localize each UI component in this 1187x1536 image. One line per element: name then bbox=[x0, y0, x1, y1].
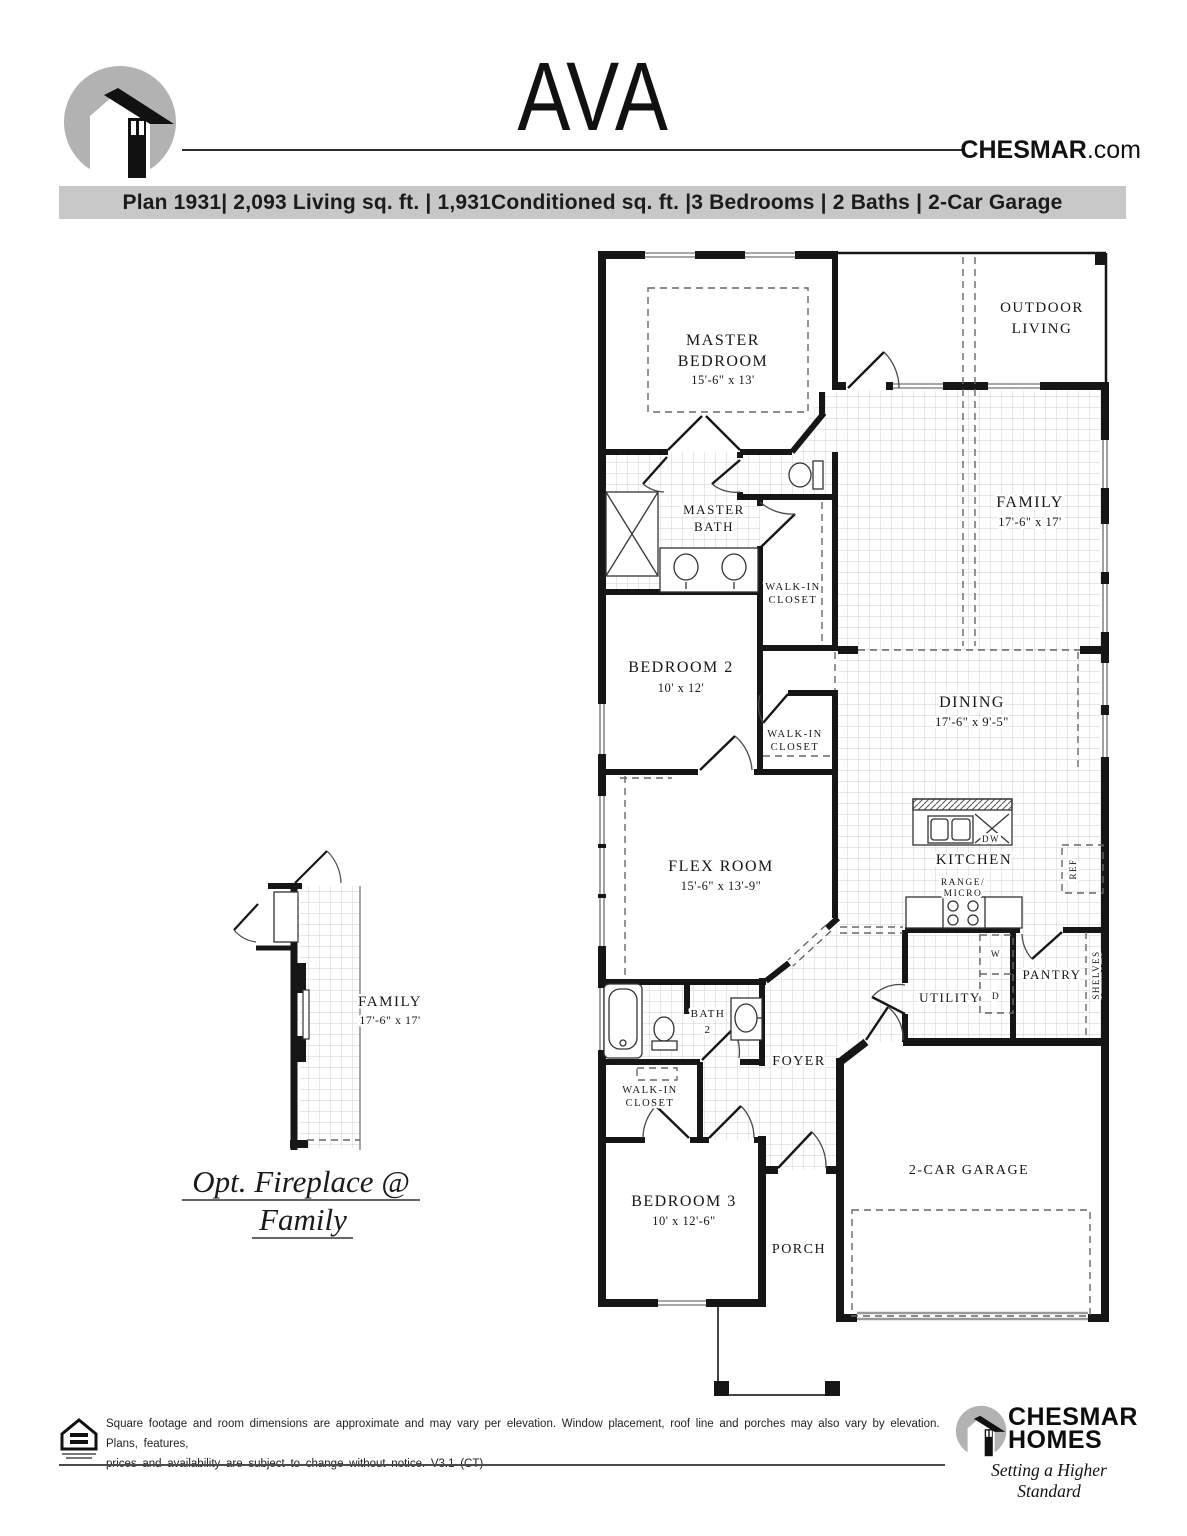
walk-in-closet2-label: WALK-IN bbox=[767, 729, 822, 740]
porch-slab bbox=[714, 1307, 840, 1396]
master-bath-label2: BATH bbox=[694, 519, 734, 534]
bedroom2-label: BEDROOM 2 bbox=[628, 659, 734, 676]
garage-label: 2-CAR GARAGE bbox=[909, 1163, 1029, 1178]
washer-label: W bbox=[991, 950, 1001, 960]
family-dims: 17'-6" x 17' bbox=[998, 515, 1062, 529]
chesmar-homes-icon bbox=[955, 1404, 1009, 1458]
dryer-label: D bbox=[992, 992, 1000, 1002]
master-bath-label: MASTER bbox=[683, 502, 745, 517]
floor-plan-flyer: AVA CHESMAR.com Plan 1931| 2,093 Living … bbox=[0, 0, 1187, 1536]
utility-label: UTILITY bbox=[919, 990, 981, 1005]
option-caption-line2: Family bbox=[258, 1202, 347, 1237]
option-fireplace-detail-plan: FAMILY 17'-6" x 17' Opt. Fireplace @ Fam… bbox=[182, 851, 422, 1238]
equal-housing-icon bbox=[60, 1418, 98, 1460]
ceiling-stub-right bbox=[1080, 646, 1105, 654]
detail-family-label: FAMILY bbox=[358, 994, 422, 1010]
detail-family-dims: 17'-6" x 17' bbox=[359, 1013, 420, 1027]
walk-in-closet3-label2: CLOSET bbox=[626, 1098, 675, 1109]
floor-plan-drawing: MASTER BEDROOM 15'-6" x 13' OUTDOOR LIVI… bbox=[0, 0, 1187, 1536]
dining-label: DINING bbox=[939, 694, 1005, 711]
walk-in-closet1-label2: CLOSET bbox=[769, 595, 818, 606]
dishwasher-label: DW bbox=[982, 834, 1000, 844]
brand-name: CHESMAR HOMES bbox=[1008, 1406, 1138, 1452]
walk-in-closet1-label: WALK-IN bbox=[765, 582, 820, 593]
walk-in-closet2-label2: CLOSET bbox=[771, 742, 820, 753]
brand-line2: HOMES bbox=[1008, 1429, 1138, 1452]
main-floor-plan: MASTER BEDROOM 15'-6" x 13' OUTDOOR LIVI… bbox=[597, 250, 1110, 1396]
patio-post bbox=[1095, 253, 1107, 265]
bath2-sink-fixture bbox=[731, 998, 762, 1040]
shower-fixture bbox=[606, 492, 658, 576]
disclaimer-line1: Square footage and room dimensions are a… bbox=[106, 1414, 948, 1454]
ceiling-stub-left bbox=[838, 646, 858, 654]
range-micro-label2: MICRO bbox=[944, 889, 983, 899]
bath2-label: BATH bbox=[691, 1008, 726, 1020]
family-label: FAMILY bbox=[996, 494, 1064, 511]
master-bedroom-dims: 15'-6" x 13' bbox=[691, 373, 755, 387]
flex-room-dims: 15'-6" x 13'-9" bbox=[681, 879, 762, 893]
kitchen-counter bbox=[906, 897, 1022, 928]
shelves-label: SHELVES bbox=[1091, 950, 1101, 999]
master-bedroom-label: MASTER bbox=[686, 332, 760, 349]
pantry-label: PANTRY bbox=[1022, 967, 1081, 982]
walk-in-closet3-label: WALK-IN bbox=[622, 1085, 677, 1096]
equal-housing-logo bbox=[60, 1418, 98, 1460]
range-micro-label: RANGE/ bbox=[941, 878, 985, 888]
dining-dims: 17'-6" x 9'-5" bbox=[935, 715, 1009, 729]
outdoor-living-label: OUTDOOR bbox=[1000, 300, 1084, 316]
kitchen-label: KITCHEN bbox=[936, 852, 1012, 868]
chesmar-homes-logo bbox=[955, 1404, 1009, 1458]
bath2-tub-fixture bbox=[604, 984, 642, 1058]
master-vanity-fixture bbox=[660, 548, 758, 592]
brand-tagline: Setting a Higher Standard bbox=[958, 1460, 1140, 1502]
master-toilet-fixture bbox=[789, 461, 823, 489]
flex-room-label: FLEX ROOM bbox=[668, 858, 774, 875]
fridge-label: REF bbox=[1068, 858, 1078, 879]
bath2-label2: 2 bbox=[705, 1024, 712, 1036]
bedroom3-dims: 10' x 12'-6" bbox=[652, 1214, 716, 1228]
porch-label: PORCH bbox=[772, 1242, 826, 1257]
footer-divider bbox=[59, 1464, 945, 1466]
master-bedroom-label2: BEDROOM bbox=[678, 353, 769, 370]
option-caption-line1: Opt. Fireplace @ bbox=[192, 1164, 410, 1199]
bedroom3-label: BEDROOM 3 bbox=[631, 1193, 737, 1210]
bedroom2-dims: 10' x 12' bbox=[658, 681, 705, 695]
foyer-label: FOYER bbox=[772, 1054, 825, 1069]
outdoor-living-label2: LIVING bbox=[1012, 321, 1073, 337]
